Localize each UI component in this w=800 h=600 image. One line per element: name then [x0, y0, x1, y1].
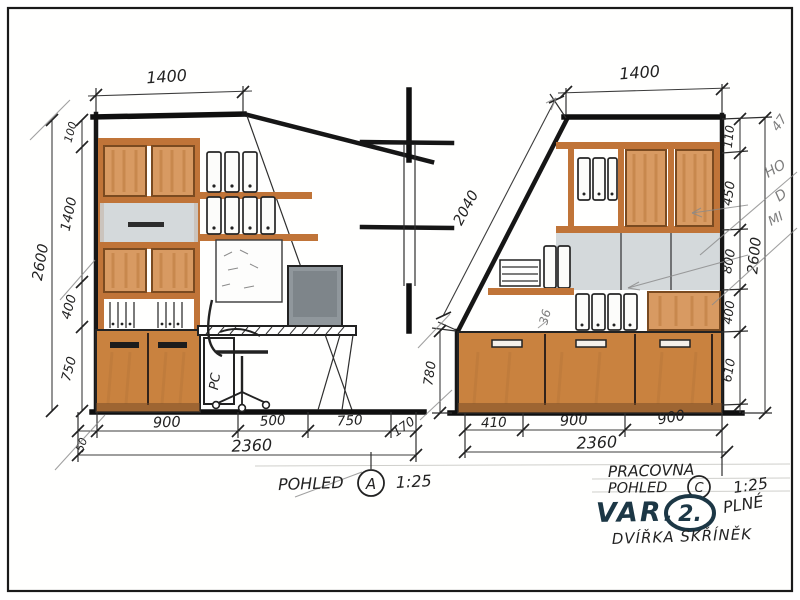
- caption-a-label: POHLED: [278, 473, 344, 494]
- sketch-canvas: PC 1400: [0, 0, 800, 600]
- dim-a-seg-500: 500: [259, 412, 286, 430]
- dim-c-total: 2360: [576, 432, 617, 452]
- door-handle: [660, 340, 690, 347]
- dim-a-seg-900: 900: [153, 415, 181, 432]
- door-handle: [492, 340, 522, 347]
- scanned-sketch-page: PC 1400: [0, 0, 800, 600]
- pinboard: [216, 240, 282, 302]
- paper-stack: [500, 260, 540, 286]
- monitor-screen: [293, 271, 337, 317]
- title-view-label: POHLED: [608, 480, 668, 497]
- title-view-letter: C: [694, 481, 704, 496]
- variant-number: 2.: [678, 502, 702, 527]
- binder: [558, 246, 570, 288]
- niche-handle: [128, 222, 164, 227]
- title-project: PRACOVNA: [608, 461, 695, 481]
- drawer-handle: [110, 342, 139, 348]
- dim-a-seg-750b: 750: [336, 412, 363, 429]
- view-c-base-cabinet: [458, 332, 722, 413]
- drawer-handle: [158, 342, 187, 348]
- door-handle: [576, 340, 606, 347]
- dim-c-seg-900a: 900: [560, 412, 588, 429]
- variant-label: VAR.: [596, 497, 676, 529]
- pc-label: PC: [207, 371, 224, 391]
- pc-tower: [204, 338, 234, 404]
- caption-a-scale: 1:25: [395, 471, 432, 492]
- dim-c-seg-110: 110: [721, 124, 737, 149]
- dim-c-top: 1400: [619, 62, 661, 84]
- dim-c-seg-410: 410: [481, 415, 507, 432]
- binder: [544, 246, 556, 288]
- dim-a-total: 2360: [231, 435, 272, 455]
- dim-a-top: 1400: [146, 66, 188, 88]
- plinth: [96, 403, 200, 412]
- caption-a-letter: A: [365, 475, 376, 493]
